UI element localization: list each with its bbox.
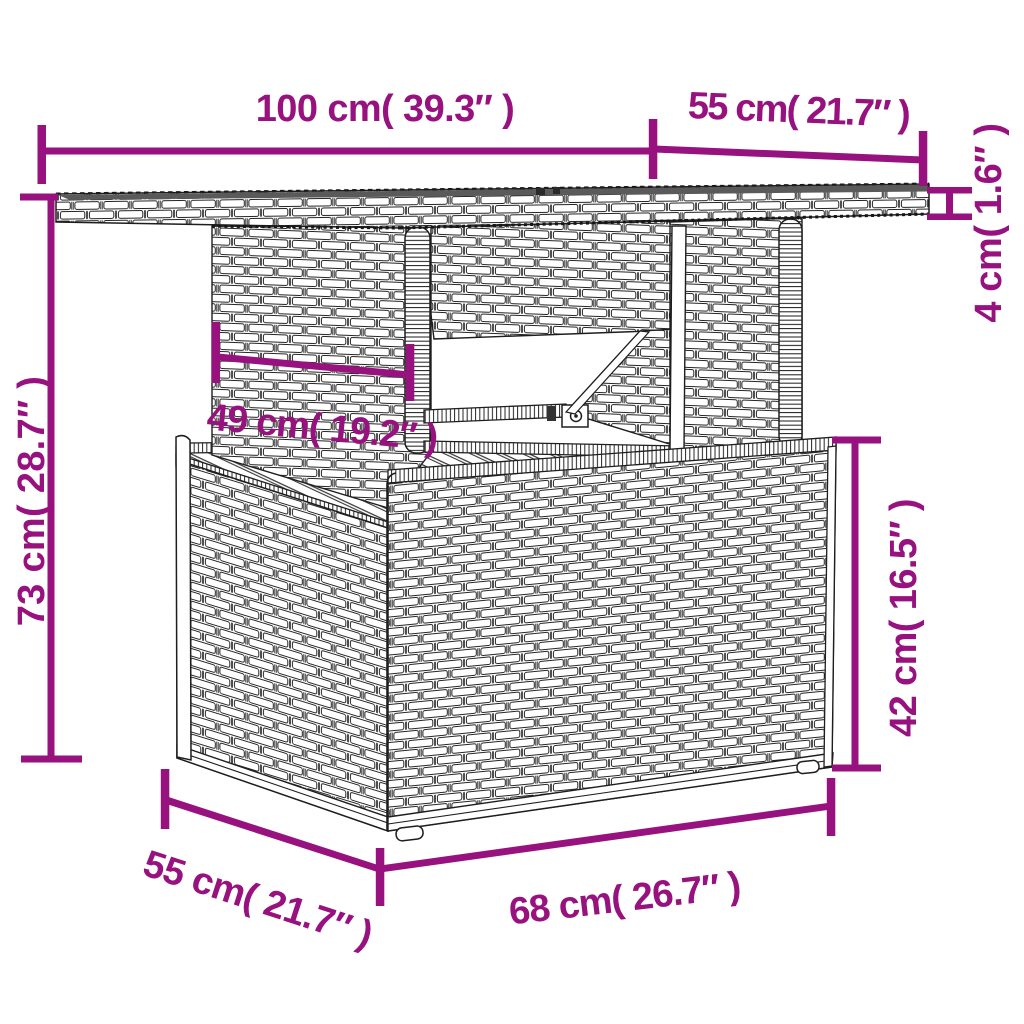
svg-text:42 cm( 16.5″ ): 42 cm( 16.5″ ) (883, 499, 925, 737)
svg-text:73 cm( 28.7″ ): 73 cm( 28.7″ ) (11, 376, 53, 627)
svg-text:100 cm( 39.3″ ): 100 cm( 39.3″ ) (256, 88, 514, 130)
svg-text:4 cm( 1.6″ ): 4 cm( 1.6″ ) (968, 123, 1010, 322)
svg-text:55 cm( 21.7″ ): 55 cm( 21.7″ ) (687, 85, 910, 136)
